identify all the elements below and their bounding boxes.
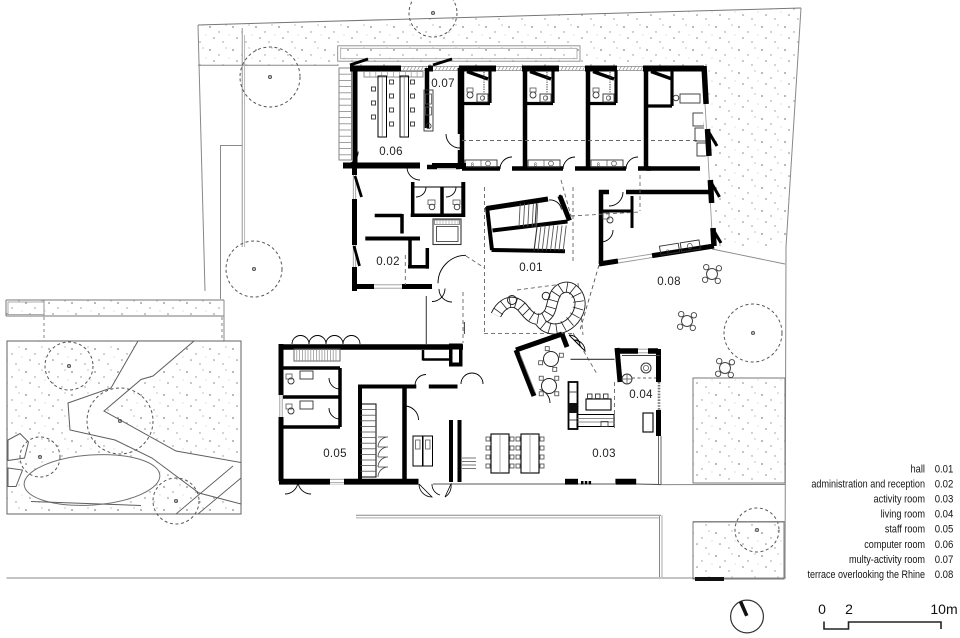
svg-text:8: 8 bbox=[471, 163, 474, 169]
svg-text:activity room: activity room bbox=[874, 494, 926, 506]
svg-text:0.06: 0.06 bbox=[935, 539, 954, 551]
svg-text:0.04: 0.04 bbox=[935, 509, 954, 521]
svg-text:0.03: 0.03 bbox=[935, 494, 954, 506]
svg-text:0.07: 0.07 bbox=[935, 554, 954, 566]
svg-text:administration and reception: administration and reception bbox=[811, 478, 925, 490]
svg-text:0.08: 0.08 bbox=[935, 569, 954, 581]
svg-text:0.02: 0.02 bbox=[376, 256, 400, 268]
svg-text:2: 2 bbox=[845, 601, 853, 617]
svg-text:0.05: 0.05 bbox=[323, 448, 347, 460]
svg-text:0.05: 0.05 bbox=[935, 524, 954, 536]
svg-text:0.08: 0.08 bbox=[657, 276, 681, 288]
svg-text:0.04: 0.04 bbox=[629, 389, 653, 401]
svg-text:computer room: computer room bbox=[864, 539, 925, 551]
svg-text:8: 8 bbox=[534, 163, 537, 169]
svg-text:0.01: 0.01 bbox=[935, 463, 954, 475]
svg-text:0.02: 0.02 bbox=[935, 478, 954, 490]
svg-text:hall: hall bbox=[911, 463, 926, 475]
svg-text:10m: 10m bbox=[930, 601, 957, 617]
svg-text:0.01: 0.01 bbox=[519, 262, 543, 274]
svg-text:staff room: staff room bbox=[885, 524, 925, 536]
svg-text:8: 8 bbox=[597, 163, 600, 169]
svg-text:0.06: 0.06 bbox=[379, 146, 403, 158]
svg-text:multy-activity room: multy-activity room bbox=[849, 554, 925, 566]
svg-text:0.03: 0.03 bbox=[592, 448, 616, 460]
svg-text:0: 0 bbox=[818, 601, 826, 617]
svg-text:0.07: 0.07 bbox=[431, 78, 455, 90]
svg-text:terrace overlooking the Rhine: terrace overlooking the Rhine bbox=[808, 569, 926, 581]
svg-text:living room: living room bbox=[881, 509, 925, 521]
